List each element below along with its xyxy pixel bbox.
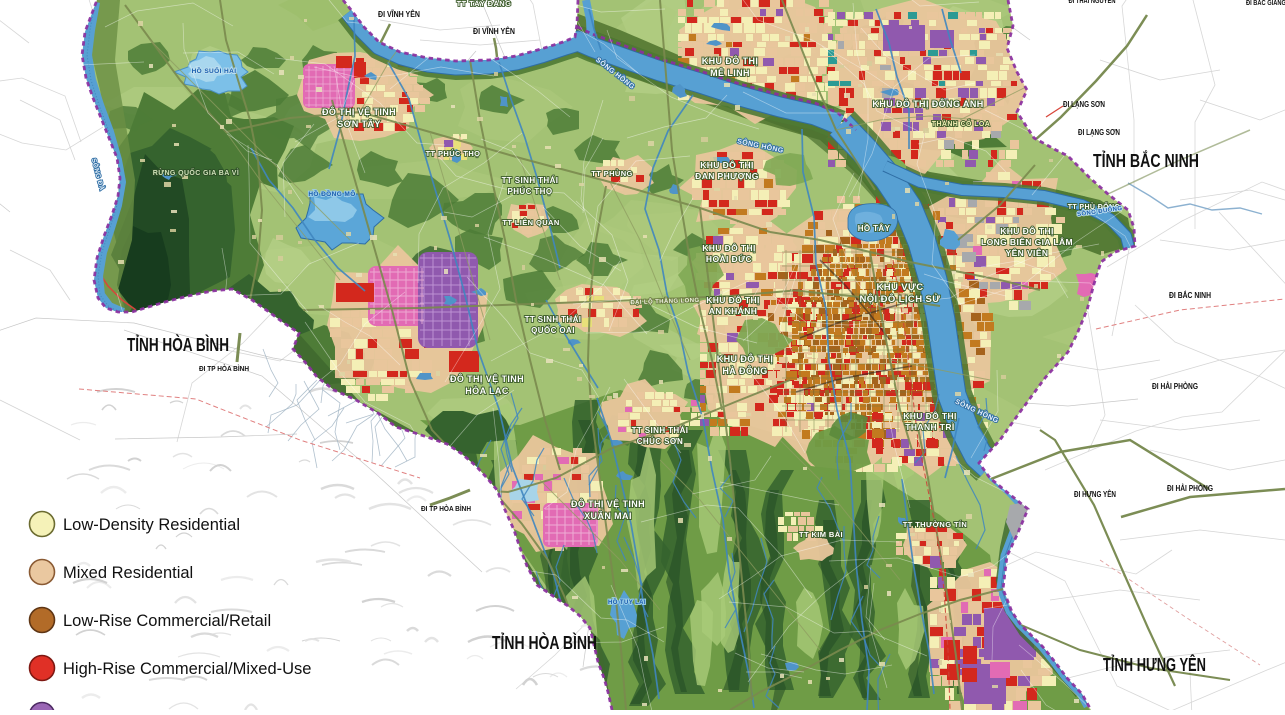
- svg-text:ĐI LẠNG SƠN: ĐI LẠNG SƠN: [1063, 100, 1105, 109]
- svg-text:KHU ĐÔ THỊ: KHU ĐÔ THỊ: [717, 353, 774, 364]
- svg-text:KHU ĐÔ THỊ: KHU ĐÔ THỊ: [702, 55, 759, 66]
- svg-text:ĐI LẠNG SƠN: ĐI LẠNG SƠN: [1078, 128, 1120, 137]
- svg-text:ĐI HƯNG YÊN: ĐI HƯNG YÊN: [1074, 490, 1116, 499]
- svg-text:ĐI HẢI PHÒNG: ĐI HẢI PHÒNG: [1167, 484, 1213, 493]
- svg-text:TT PHÚC THỌ: TT PHÚC THỌ: [426, 149, 481, 158]
- svg-text:ĐÔ THỊ VỆ TINH: ĐÔ THỊ VỆ TINH: [450, 373, 524, 384]
- svg-text:Mixed Residential: Mixed Residential: [63, 564, 193, 582]
- svg-text:THÀNH CỔ LOA: THÀNH CỔ LOA: [932, 119, 990, 128]
- svg-text:ĐI VĨNH YÊN: ĐI VĨNH YÊN: [378, 10, 420, 19]
- svg-text:CHÚC SƠN: CHÚC SƠN: [637, 437, 683, 446]
- svg-text:TT KIM BÀI: TT KIM BÀI: [799, 530, 843, 539]
- svg-text:HOÀI ĐỨC: HOÀI ĐỨC: [706, 253, 752, 264]
- svg-text:KHU ĐÔ THỊ ĐÔNG ANH: KHU ĐÔ THỊ ĐÔNG ANH: [872, 98, 983, 109]
- svg-text:TT PHÙNG: TT PHÙNG: [591, 169, 633, 178]
- svg-text:QUỐC OAI: QUỐC OAI: [531, 325, 575, 335]
- svg-text:KHU ĐÔ THỊ: KHU ĐÔ THỊ: [1000, 225, 1054, 236]
- svg-text:KHU ĐÔ THỊ: KHU ĐÔ THỊ: [706, 294, 760, 305]
- svg-text:ĐI TP HÒA BÌNH: ĐI TP HÒA BÌNH: [199, 364, 249, 373]
- svg-text:TỈNH HÒA BÌNH: TỈNH HÒA BÌNH: [492, 632, 597, 653]
- svg-text:TT TÂY ĐẰNG: TT TÂY ĐẰNG: [457, 0, 512, 8]
- svg-text:ĐÔ THỊ VỆ TINH: ĐÔ THỊ VỆ TINH: [322, 106, 396, 117]
- svg-text:TT SINH THÁI: TT SINH THÁI: [632, 426, 689, 435]
- svg-text:TT LIÊN QUAN: TT LIÊN QUAN: [502, 218, 559, 227]
- svg-text:ĐI THÁI NGUYÊN: ĐI THÁI NGUYÊN: [1069, 0, 1116, 5]
- svg-text:TỈNH HƯNG YÊN: TỈNH HƯNG YÊN: [1103, 654, 1206, 675]
- svg-text:HỒ TÂY: HỒ TÂY: [858, 223, 891, 233]
- svg-text:SƠN TÂY: SƠN TÂY: [337, 118, 380, 129]
- svg-text:XUÂN MAI: XUÂN MAI: [584, 510, 632, 521]
- svg-text:Low-Rise Commercial/Retail: Low-Rise Commercial/Retail: [63, 612, 271, 630]
- svg-text:ĐI TP HÒA BÌNH: ĐI TP HÒA BÌNH: [421, 504, 471, 513]
- svg-text:High-Rise Commercial/Mixed-Use: High-Rise Commercial/Mixed-Use: [63, 660, 311, 678]
- svg-text:KHU VỰC: KHU VỰC: [876, 282, 923, 293]
- svg-text:ĐAN PHƯỢNG: ĐAN PHƯỢNG: [695, 171, 759, 181]
- svg-text:TT SINH THÁI: TT SINH THÁI: [525, 315, 582, 324]
- svg-text:LONG BIÊN GIA LÂM: LONG BIÊN GIA LÂM: [981, 236, 1073, 247]
- svg-text:HỒ TUY LAI: HỒ TUY LAI: [608, 599, 646, 606]
- svg-text:TỈNH HÒA BÌNH: TỈNH HÒA BÌNH: [127, 334, 229, 355]
- svg-text:Low-Density Residential: Low-Density Residential: [63, 516, 240, 534]
- svg-text:ĐI BẮC NINH: ĐI BẮC NINH: [1169, 291, 1211, 300]
- svg-text:AN KHÁNH: AN KHÁNH: [709, 306, 758, 316]
- svg-text:KHU ĐÔ THỊ: KHU ĐÔ THỊ: [702, 242, 756, 253]
- svg-text:KHU ĐÔ THỊ: KHU ĐÔ THỊ: [903, 410, 957, 421]
- svg-text:TT THƯỜNG TÍN: TT THƯỜNG TÍN: [903, 520, 967, 529]
- svg-text:KHU ĐÔ THỊ: KHU ĐÔ THỊ: [700, 159, 754, 170]
- svg-text:YÊN VIÊN: YÊN VIÊN: [1006, 247, 1049, 258]
- svg-text:ĐI VĨNH YÊN: ĐI VĨNH YÊN: [473, 27, 515, 36]
- svg-text:NỘI ĐÔ LỊCH SỬ: NỘI ĐÔ LỊCH SỬ: [859, 293, 940, 305]
- svg-text:THANH TRÌ: THANH TRÌ: [905, 422, 954, 432]
- svg-text:TỈNH BẮC NINH: TỈNH BẮC NINH: [1093, 150, 1199, 171]
- svg-text:ĐI BẮC GIANG: ĐI BẮC GIANG: [1246, 0, 1285, 7]
- svg-text:PHÚC THỌ: PHÚC THỌ: [508, 187, 553, 196]
- svg-text:HÀ ĐÔNG: HÀ ĐÔNG: [722, 365, 767, 376]
- svg-text:ĐI HẢI PHÒNG: ĐI HẢI PHÒNG: [1152, 382, 1198, 391]
- svg-text:MÊ LINH: MÊ LINH: [710, 67, 750, 78]
- svg-text:TT SINH THÁI: TT SINH THÁI: [502, 176, 559, 185]
- svg-text:ĐÔ THỊ VỆ TINH: ĐÔ THỊ VỆ TINH: [571, 498, 645, 509]
- svg-text:HÒA LẠC: HÒA LẠC: [465, 385, 509, 396]
